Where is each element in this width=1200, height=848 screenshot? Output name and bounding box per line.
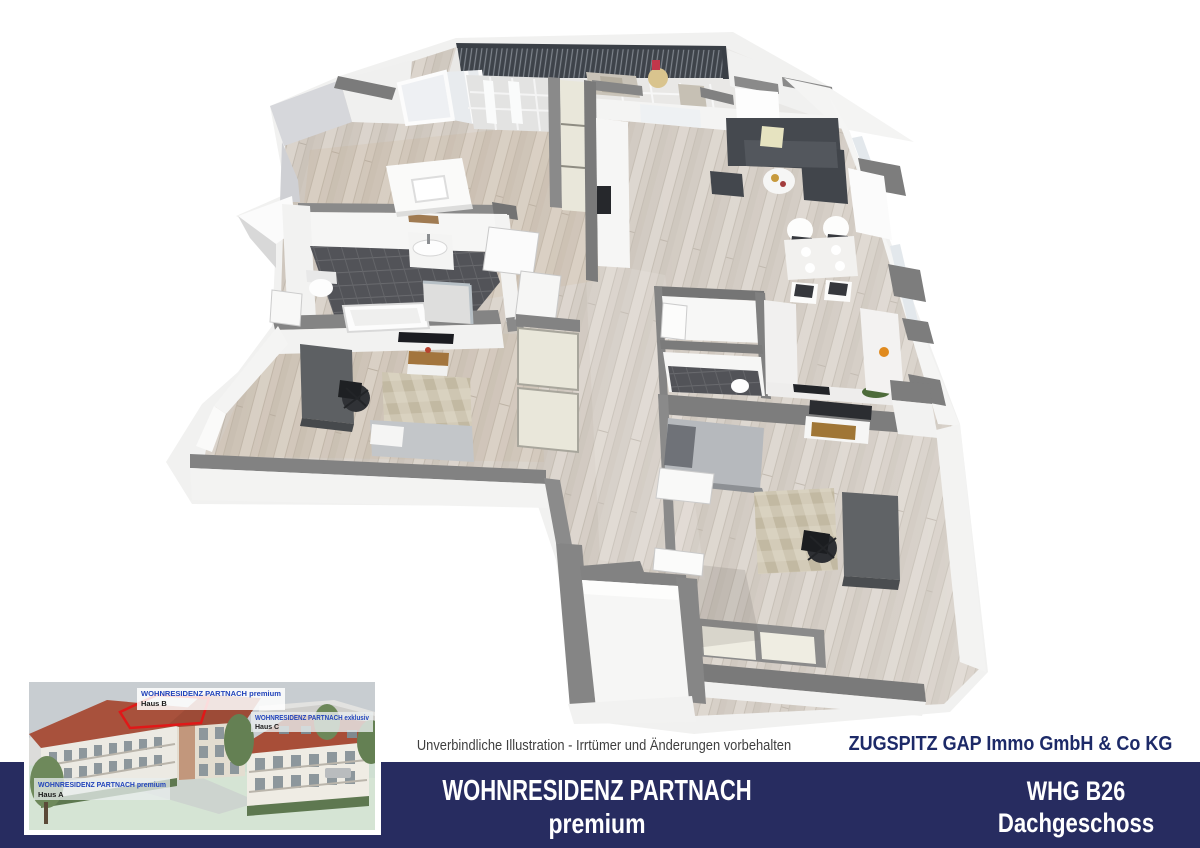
svg-text:Haus C: Haus C xyxy=(255,724,279,731)
svg-text:WOHNRESIDENZ PARTNACH exklusiv: WOHNRESIDENZ PARTNACH exklusiv xyxy=(255,715,369,722)
svg-text:WOHNRESIDENZ PARTNACH premium: WOHNRESIDENZ PARTNACH premium xyxy=(38,780,166,789)
svg-text:Haus B: Haus B xyxy=(141,699,167,708)
svg-text:Haus A: Haus A xyxy=(38,790,64,799)
svg-text:WOHNRESIDENZ PARTNACH premium: WOHNRESIDENZ PARTNACH premium xyxy=(141,689,281,698)
